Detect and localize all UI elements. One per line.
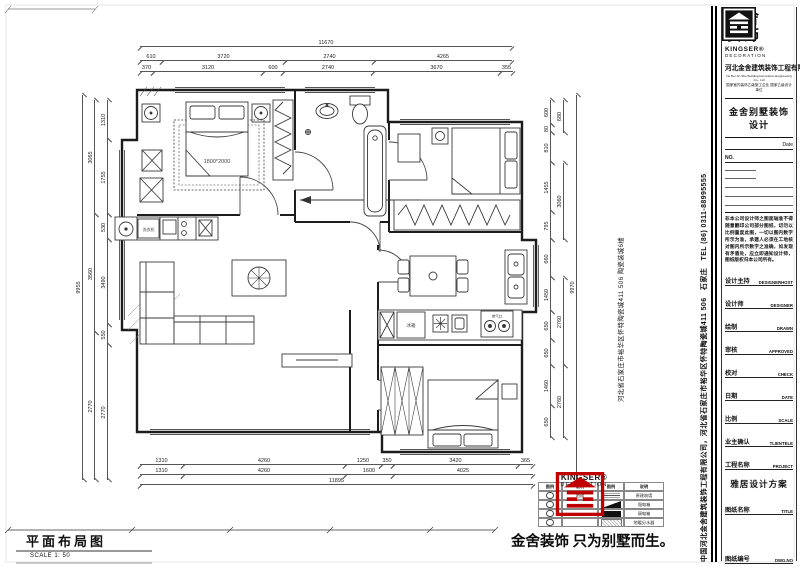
dim-label: 1755 <box>101 140 108 215</box>
field-label-en: DRAWN <box>777 326 793 331</box>
dim-label: 1450 <box>544 278 551 312</box>
dim-label: 600 <box>263 65 283 72</box>
brand-slogan: 金舍装饰 只为别墅而生。 <box>511 530 674 551</box>
laundry-counter <box>115 217 218 240</box>
dim-label: 4265 <box>374 54 512 61</box>
field-label: 业主确认 <box>725 437 750 446</box>
field-label: 工程名称 <box>725 460 750 469</box>
field-dwg-no: 图纸编号 DWG.NO <box>725 549 793 564</box>
dim-label: 9970 <box>570 95 577 480</box>
master-bed <box>142 102 270 190</box>
field-approved: 审核APPROVED <box>725 340 793 355</box>
legend-label: 强电箱 <box>624 500 664 509</box>
socket-symbol <box>546 492 554 500</box>
dim-label: 660 <box>544 240 551 278</box>
company-info-strip: 中国河北金舍建筑装饰工程有限公司，河北省石家庄市裕华区怀特陶瓷城411 506 … <box>699 14 709 562</box>
revision-line <box>725 171 756 179</box>
dim-label: 1460 <box>544 366 551 406</box>
dim-label: 3420 <box>393 458 518 465</box>
plan-labels: 1800*2000 洗衣机 冰箱 燃气灶 <box>143 159 503 329</box>
double-sink <box>505 250 527 304</box>
hatch-symbol <box>601 519 622 527</box>
legend-symbol-cell <box>538 518 562 527</box>
spacer <box>725 523 793 549</box>
project-value: 雅居设计方案 <box>725 478 793 490</box>
dim-label: 1455 <box>544 163 551 212</box>
dim-label: 3560 <box>88 215 95 333</box>
dim-label: 370 <box>140 65 153 72</box>
kingser-stamp-icon <box>555 472 605 516</box>
drawing-sheet: 1800*2000 洗衣机 冰箱 燃气灶 1167061037202740426… <box>0 0 800 567</box>
brand-latin-sub: DECORATION <box>725 53 793 58</box>
washer-label: 洗衣机 <box>143 226 155 232</box>
brand-latin: KINGSER® <box>725 46 793 53</box>
dim-label: 795 <box>544 212 551 240</box>
dim-label: 1310 <box>101 100 108 140</box>
field-scale: 比例SCALE <box>725 409 793 424</box>
field-label: 校对 <box>725 368 737 377</box>
field-tlientele: 业主确认TLIENTELE <box>725 432 793 447</box>
field-label-en: SCALE <box>778 418 793 423</box>
legend-table-right: 图例说明原建筑墙强电箱弱电箱地暖分水器 <box>598 482 664 527</box>
bedroom3 <box>381 367 517 448</box>
socket-symbol <box>546 519 554 527</box>
bed-size-label: 1800*2000 <box>204 159 231 165</box>
dim-label: 1600 <box>345 468 393 475</box>
dim-label: 4260 <box>183 468 345 475</box>
divider <box>725 98 793 99</box>
dim-label: 1310 <box>140 468 183 475</box>
date-label: Date <box>725 142 793 150</box>
field-designer: 设计师DESIGNER <box>725 294 793 309</box>
field-label: 设计主持 <box>725 276 750 285</box>
socket-symbol <box>546 501 554 509</box>
title-block: 金舍 装饰 KINGSER® DECORATION 河北金舍建筑装饰工程有限公司… <box>721 7 797 561</box>
socket-symbol <box>546 510 554 518</box>
field-title: 图纸名称 TITLE <box>725 500 793 515</box>
dim-label: 3120 <box>153 65 263 72</box>
plan-title: 平面布局图 <box>26 531 106 550</box>
dim-label: 2770 <box>88 333 95 480</box>
field-label: 日期 <box>725 391 737 400</box>
field-drawn: 绘制DRAWN <box>725 317 793 332</box>
dim-label: 3060 <box>557 163 564 240</box>
kingser-logo-icon <box>722 7 756 41</box>
company-name: 河北金舍建筑装饰工程有限公司 <box>725 62 793 72</box>
disclaimer: 非本公司设计师之图面轴准不得随意翻印公司部分图纸，切勿以比例量度此图，一切以图内… <box>725 212 793 264</box>
dim-label: 4260 <box>183 458 345 465</box>
field-label-en: DESIGNER <box>771 303 793 308</box>
dim-label: 600 <box>544 100 551 125</box>
dim-label: 3490 <box>101 240 108 325</box>
company-stamp: KINGSER® DECORATION <box>555 472 613 488</box>
dim-label: 365 <box>518 458 533 465</box>
dim-label: 2740 <box>283 65 373 72</box>
address-strip: 河北省石家庄市裕华区怀特陶瓷城411 506 陶瓷装城6楼 <box>616 178 625 402</box>
revision-line <box>725 163 756 171</box>
field-label-en: DESIGNERHOST <box>759 280 793 285</box>
dim-label: 2760 <box>557 278 564 366</box>
separator-bar <box>711 6 717 562</box>
fridge-label: 冰箱 <box>407 322 416 329</box>
field-label: 绘制 <box>725 322 737 331</box>
dim-label: 11895 <box>140 478 533 485</box>
field-label: 比例 <box>725 414 737 423</box>
revision-line <box>725 179 793 188</box>
field-label-en: DATE <box>782 395 793 400</box>
signature-fields: 设计主持DESIGNERHOST设计师DESIGNER绘制DRAWN审核APPR… <box>725 271 793 470</box>
living-room <box>140 260 352 367</box>
legend-symbol-cell <box>598 518 624 527</box>
legend-label: 地暖分水器 <box>624 518 664 527</box>
dim-label: 2770 <box>101 345 108 480</box>
dim-label: 1250 <box>345 458 381 465</box>
dim-label: 650 <box>544 312 551 340</box>
dim-label: 810 <box>544 133 551 163</box>
field-designerhost: 设计主持DESIGNERHOST <box>725 271 793 286</box>
bedroom2 <box>394 128 520 230</box>
field-check: 校对CHECK <box>725 363 793 378</box>
field-label-en: CHECK <box>778 372 793 377</box>
legend-label: 弱电箱 <box>624 509 664 518</box>
dim-label: 3670 <box>373 65 500 72</box>
field-label-en: PROJECT <box>773 464 793 469</box>
wardrobe-master <box>273 100 293 180</box>
dim-label: 4025 <box>393 468 533 475</box>
dim-label: 11670 <box>140 40 512 47</box>
revision-line <box>725 188 793 197</box>
revision-line <box>725 197 793 206</box>
dim-label: 1310 <box>140 458 183 465</box>
field-label: 审核 <box>725 345 737 354</box>
field-label-en: APPROVED <box>769 349 793 354</box>
dim-label: 3065 <box>88 100 95 215</box>
dining-set <box>398 256 468 296</box>
divider <box>725 137 793 138</box>
legend-label <box>562 518 598 527</box>
field-label-en: TITLE <box>781 509 793 514</box>
no-label: NO. <box>725 155 793 163</box>
product-line: 金舍别墅装饰设计 <box>725 105 793 131</box>
field-label-en: DWG.NO <box>775 558 793 563</box>
field-label-en: TLIENTELE <box>770 441 793 446</box>
plan-scale: SCALE 1: 50 <box>30 553 70 559</box>
dim-label: 530 <box>101 215 108 240</box>
dim-label: 680 <box>557 100 564 133</box>
dim-label: 3720 <box>162 54 285 61</box>
dim-label: 650 <box>544 406 551 438</box>
field-date: 日期DATE <box>725 386 793 401</box>
brand-logo: 金舍 装饰 <box>725 10 793 44</box>
field-label: 图纸编号 <box>725 554 750 563</box>
furniture <box>115 87 527 448</box>
company-credential: 国家室内装饰乙级施工企业 国家乙级设计单位 <box>725 83 793 93</box>
legend-label: 原建筑墙 <box>624 491 664 500</box>
field-label: 设计师 <box>725 299 744 308</box>
dim-label: 9955 <box>76 95 83 480</box>
dim-label: 2760 <box>557 366 564 438</box>
stove-label: 燃气灶 <box>492 314 503 319</box>
dim-label: 650 <box>544 340 551 366</box>
legend-header: 说明 <box>624 482 664 491</box>
company-name-en: He Bei Jin She Building Decoration Engin… <box>725 74 793 82</box>
wall-hatch <box>140 87 161 96</box>
dim-label: 610 <box>140 54 162 61</box>
dim-label: 350 <box>381 458 393 465</box>
field-project: 工程名称PROJECT <box>725 455 793 470</box>
dim-label: 2740 <box>285 54 374 61</box>
field-label: 图纸名称 <box>725 505 750 514</box>
bathroom-fixtures <box>305 96 386 216</box>
dim-label: 355 <box>500 65 513 72</box>
